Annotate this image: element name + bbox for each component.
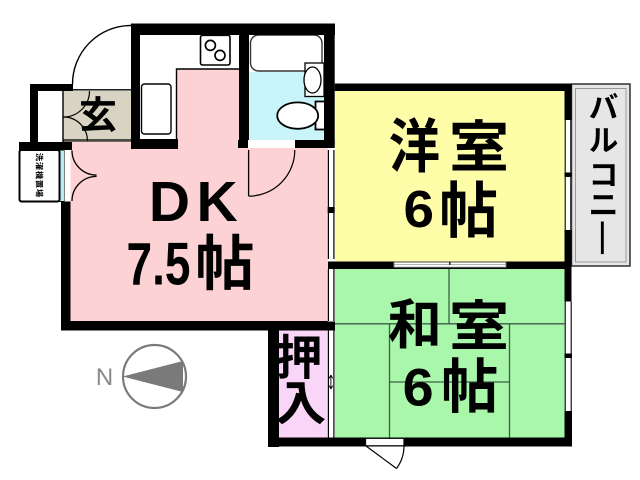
svg-text:N: N — [96, 364, 113, 391]
svg-text:DK: DK — [149, 170, 244, 234]
svg-text:6: 6 — [403, 358, 434, 417]
svg-text:6: 6 — [404, 181, 435, 239]
svg-text:7.5: 7.5 — [127, 230, 191, 298]
